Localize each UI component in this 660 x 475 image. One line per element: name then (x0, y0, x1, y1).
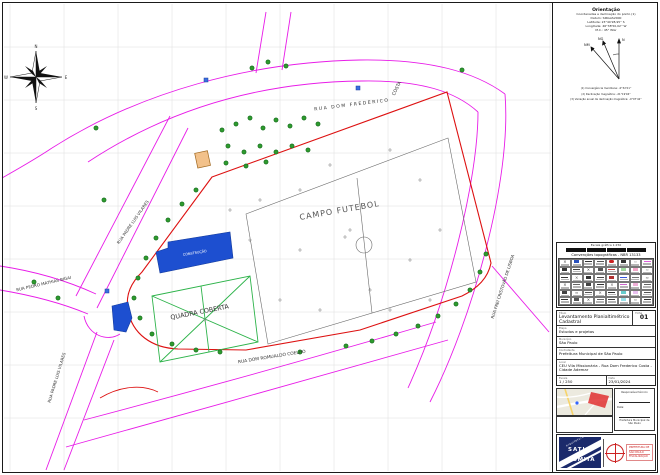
scale-value: 1 / 250 (559, 380, 604, 384)
street-network (0, 12, 549, 470)
legend-symbol-cell (618, 274, 630, 282)
sheet-number-cell: Folha 01 (632, 311, 655, 325)
tree-symbol (284, 64, 288, 68)
legend-symbol-grid: ×≈×≈×≈××≈××≈ (558, 258, 654, 306)
legend-symbol-cell (606, 297, 618, 305)
legend-symbol-cell (641, 282, 653, 290)
logo-tagline: arquitetura (565, 437, 584, 448)
legend-symbol-cell: × (594, 290, 606, 298)
graphic-scale-caption: Escala gráfica 1:250 (558, 244, 654, 247)
legend-symbol-cell: ≈ (630, 297, 642, 305)
scale-cell: Escala 1 / 250 (557, 376, 606, 385)
tree-symbol (56, 296, 60, 300)
legend-symbol-cell (606, 259, 618, 267)
orientation-line: M.C.: 45° WGr (558, 29, 654, 33)
orientation-footnote: (2) Declinação magnética: -21°19'04'' (558, 93, 654, 97)
legend-symbol-cell (641, 297, 653, 305)
map-label: CAMPO FUTEBOL (299, 199, 380, 222)
tree-symbol (454, 302, 458, 306)
orientation-footnote: (1) Convergência meridiana: -0°32'21'' (558, 87, 654, 91)
tree-symbol (194, 348, 198, 352)
legend-symbol-cell (618, 297, 630, 305)
survey-sheet: N E S W (0, 0, 660, 475)
satio-tomita-logo: arquitetura SATIO TOMITA (559, 437, 601, 468)
tree-symbol (266, 60, 270, 64)
tree-symbol (394, 332, 398, 336)
tree-symbol (290, 144, 294, 148)
legend-symbol-cell (583, 290, 595, 298)
grid-north-label: NG (598, 37, 604, 41)
legend-symbol-cell (618, 259, 630, 267)
tree-symbol (274, 118, 278, 122)
tree-symbol (416, 324, 420, 328)
small-building-footprint (112, 302, 132, 332)
legend-symbol-cell (583, 274, 595, 282)
stage-value: Estudos e projetos (559, 330, 653, 334)
logo-name-bottom: TOMITA (568, 457, 595, 463)
legend-symbol-cell: × (571, 274, 583, 282)
sheet-number: 01 (635, 315, 653, 322)
north-declination-diagram: N NG NM (571, 33, 641, 81)
client-cell: Contratante Prefeitura Municipal de São … (557, 348, 655, 359)
company-logo-box: arquitetura SATIO TOMITA PREFEITURA DE S… (556, 434, 656, 471)
signature-label-2: Prefeitura Municipal de São Paulo (617, 419, 652, 425)
tree-symbol (244, 164, 248, 168)
legend-symbol-cell: × (559, 259, 571, 267)
documentation-strip: Responsável técnico Data: Prefeitura Mun… (556, 388, 656, 432)
panel-divider (552, 2, 553, 473)
legend-symbol-cell (571, 259, 583, 267)
legend-symbol-cell (594, 267, 606, 275)
city-value: São Paulo (559, 341, 653, 345)
shed-footprint (195, 151, 211, 168)
legend-symbol-cell: × (606, 282, 618, 290)
minimap-location-dot (575, 401, 578, 404)
legend-symbol-cell (559, 267, 571, 275)
legend-symbol-cell (630, 267, 642, 275)
tree-symbol (264, 160, 268, 164)
site-plan-drawing: N E S W (0, 0, 553, 475)
compass-east-label: E (65, 75, 68, 80)
tree-symbol (170, 342, 174, 346)
tree-symbol (218, 350, 222, 354)
legend-symbol-cell (606, 290, 618, 298)
compass-north-label: N (35, 44, 38, 49)
legend-symbol-cell (618, 290, 630, 298)
tree-symbol (258, 144, 262, 148)
legend-title: Convenções topográficas - NBR 13133 (558, 253, 654, 257)
legend-symbol-cell (594, 274, 606, 282)
municipal-emblem-icon (606, 444, 624, 462)
map-label: RUA PADRE LUIS VILARES (47, 351, 67, 403)
legend-symbol-cell (594, 259, 606, 267)
legend-symbol-cell (559, 274, 571, 282)
legend-symbol-cell (583, 259, 595, 267)
tree-symbol (150, 332, 154, 336)
location-minimap (556, 388, 613, 416)
tree-symbol (242, 150, 246, 154)
logo-divider (603, 439, 604, 467)
tree-symbol (484, 252, 488, 256)
date-cell: Data 23/01/2024 (606, 376, 656, 385)
tree-symbol (94, 126, 98, 130)
legend-symbol-cell (594, 297, 606, 305)
tree-symbol (344, 344, 348, 348)
signature-box: Responsável técnico Data: Prefeitura Mun… (614, 388, 655, 431)
site-address-cell: Local CEU Vila Missionária - Rua Dom Fre… (557, 360, 655, 375)
tree-symbol (154, 236, 158, 240)
legend-symbol-cell (606, 274, 618, 282)
spot-elevation-marks (203, 148, 442, 322)
tree-symbol (316, 122, 320, 126)
legend-symbol-cell (630, 282, 642, 290)
tree-symbol (436, 314, 440, 318)
site-value: CEU Vila Missionária - Rua Dom Frederico… (559, 364, 653, 373)
legend-box: Escala gráfica 1:250 Convenções topográf… (556, 242, 656, 308)
legend-symbol-cell (571, 282, 583, 290)
stamp-line: FISCALIZAÇÃO (629, 455, 650, 459)
signature-line-2 (619, 413, 650, 418)
drawing-title: Levantamento Planialtimétrico Cadastral (559, 315, 630, 326)
signature-label-1: Responsável técnico (617, 391, 652, 394)
legend-symbol-cell: × (583, 267, 595, 275)
compass-rose-icon: N E S W (4, 44, 68, 111)
orientation-box: Orientação Coordenadas e declinação do p… (558, 8, 654, 124)
tree-symbol (102, 198, 106, 202)
client-value: Prefeitura Municipal de São Paulo (559, 352, 653, 356)
signature-date-note: Data: (617, 406, 652, 409)
map-labels: CAMPO FUTEBOLQUADRA COBERTACONSTRUÇÃORUA… (16, 80, 516, 404)
tree-symbol (460, 68, 464, 72)
tree-symbol (224, 161, 228, 165)
magnetic-north-label: NM (584, 43, 590, 47)
legend-symbol-cell (630, 274, 642, 282)
map-label: RUA DOM ROMUALDO COELHO (238, 349, 307, 366)
legend-symbol-cell (594, 282, 606, 290)
tree-symbol (138, 316, 142, 320)
tree-symbol (370, 339, 374, 343)
tree-symbol (226, 144, 230, 148)
tree-symbol (136, 276, 140, 280)
tree-symbol (306, 148, 310, 152)
approval-stamp: PREFEITURA DE SÃO PAULO FISCALIZAÇÃO (626, 444, 653, 461)
legend-symbol-cell (641, 259, 653, 267)
signature-line-1 (619, 398, 650, 403)
map-label: RUA FREI CRISTOVÃO DE LISBOA (490, 254, 516, 319)
north-arrow-label: N (622, 38, 625, 42)
legend-symbol-cell: ≈ (630, 259, 642, 267)
utility-symbol (204, 78, 208, 82)
coordinate-grid (4, 4, 551, 471)
notes-box (556, 416, 613, 433)
legend-symbol-cell (641, 290, 653, 298)
drawing-title-cell: Título Levantamento Planialtimétrico Cad… (557, 311, 632, 325)
city-cell: Município São Paulo (557, 337, 655, 347)
tree-symbol (132, 296, 136, 300)
legend-symbol-cell: ≈ (641, 274, 653, 282)
tree-symbol (288, 124, 292, 128)
stage-cell: Etapa Estudos e projetos (557, 326, 655, 336)
legend-symbol-cell: ≈ (571, 290, 583, 298)
legend-symbol-cell (571, 267, 583, 275)
tree-symbol (234, 122, 238, 126)
tree-symbol (261, 126, 265, 130)
tree-symbol (250, 66, 254, 70)
map-label: RUA PEDRO MATHIAS BIGAI (16, 275, 72, 293)
compass-west-label: W (4, 75, 8, 80)
date-value: 23/01/2024 (609, 380, 654, 384)
compass-south-label: S (35, 106, 38, 111)
legend-symbol-cell (559, 297, 571, 305)
legend-symbol-cell (583, 282, 595, 290)
legend-symbol-cell (559, 290, 571, 298)
tree-symbol (220, 128, 224, 132)
legend-symbol-cell (606, 267, 618, 275)
graphic-scale-bar (566, 248, 646, 252)
legend-symbol-cell (618, 282, 630, 290)
legend-symbol-cell (618, 267, 630, 275)
legend-symbol-cell: × (559, 282, 571, 290)
utility-symbol (105, 289, 109, 293)
legend-symbol-cell: ≈ (641, 267, 653, 275)
tree-symbol (144, 256, 148, 260)
football-field (246, 138, 476, 344)
map-label: RUA DOM FREDERICO (314, 97, 390, 112)
orientation-footnote: (3) Variação anual da declinação magnéti… (558, 98, 654, 102)
tree-symbol (274, 150, 278, 154)
legend-symbol-cell: × (583, 297, 595, 305)
logo-name-top: SATIO (568, 447, 591, 453)
tree-symbol (248, 116, 252, 120)
utility-symbol (356, 86, 360, 90)
tree-symbol (180, 202, 184, 206)
title-block: Título Levantamento Planialtimétrico Cad… (556, 310, 656, 386)
legend-symbol-cell (571, 297, 583, 305)
tree-symbol (194, 188, 198, 192)
tree-symbol (478, 270, 482, 274)
tree-symbol (302, 116, 306, 120)
legend-symbol-cell (630, 290, 642, 298)
tree-symbol (166, 218, 170, 222)
tree-symbol (468, 288, 472, 292)
